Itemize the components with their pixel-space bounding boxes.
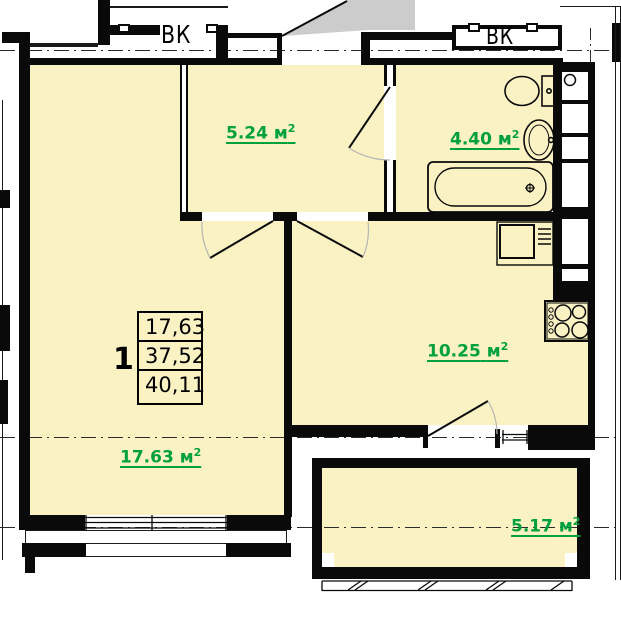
stove-icon [545, 301, 590, 341]
fixtures-overlay [0, 0, 621, 635]
vent-circle-icon [565, 75, 576, 86]
area-unit: м [559, 517, 573, 537]
room-area-label-bathroom: 4.40 м2 [450, 128, 519, 150]
room-area-label-hallway: 5.24 м2 [226, 122, 295, 144]
bathtub-icon [428, 162, 553, 212]
stat-heated-area: 37,52 [139, 342, 201, 371]
area-value: 10.25 [427, 342, 481, 362]
area-power: 2 [573, 515, 581, 528]
vk-label-right: ВК [486, 24, 514, 50]
balcony-door-leaf [428, 401, 488, 436]
area-value: 5.24 [226, 124, 268, 144]
room-area-label-living: 17.63 м2 [120, 446, 201, 468]
living-door-arc [202, 222, 210, 258]
balcony-door-arc [488, 401, 497, 434]
vk-label-left: ВК [161, 20, 191, 49]
washbasin-icon [524, 120, 554, 160]
area-unit: м [487, 342, 501, 362]
living-window-icon [85, 515, 227, 530]
apartment-stats-box: 17,63 37,52 40,11 [137, 311, 203, 405]
area-value: 5.17 [511, 517, 553, 537]
area-value: 4.40 [450, 130, 492, 150]
stat-total-area: 40,11 [139, 371, 201, 400]
room-area-label-balcony: 5.17 м2 [511, 515, 580, 537]
entrance-door-leaf [282, 1, 347, 36]
area-value: 17.63 [120, 448, 174, 468]
kitchen-window-icon [502, 430, 528, 444]
rooms-count-label: 1 [113, 342, 134, 377]
bathroom-door-leaf [349, 87, 390, 148]
area-unit: м [180, 448, 194, 468]
area-power: 2 [501, 340, 509, 353]
area-power: 2 [194, 446, 202, 459]
area-unit: м [498, 130, 512, 150]
stat-living-area: 17,63 [139, 313, 201, 342]
kitchen-door-arc [363, 222, 368, 257]
bathroom-door-arc [349, 148, 390, 160]
room-area-label-kitchen: 10.25 м2 [427, 340, 508, 362]
kitchen-sink-icon [497, 222, 553, 265]
area-power: 2 [512, 128, 520, 141]
floor-plan: ВК ВК 5.24 м2 4.40 м2 10.25 м2 17.63 м2 … [0, 0, 621, 635]
area-power: 2 [288, 122, 296, 135]
kitchen-door-leaf [297, 221, 363, 257]
balcony-glazing-icon [322, 581, 572, 591]
living-door-leaf [210, 221, 273, 258]
toilet-icon [505, 76, 554, 106]
area-unit: м [274, 124, 288, 144]
